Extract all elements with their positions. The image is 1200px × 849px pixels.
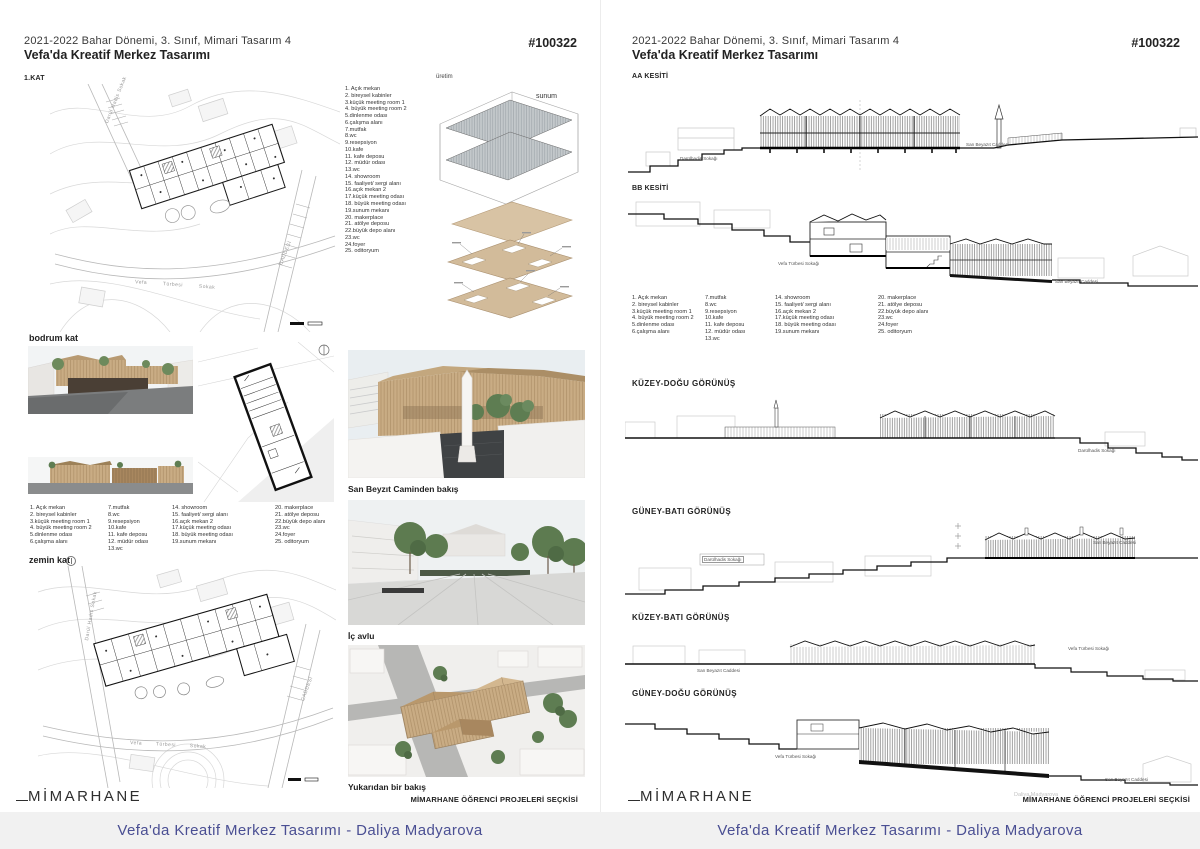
- legend-item: 18. büyük meeting odası: [775, 322, 836, 329]
- legend-item: 3.küçük meeting room 1: [632, 309, 694, 316]
- legend-item: 7.mutfak: [345, 127, 440, 134]
- logo-underscore: [16, 787, 28, 801]
- legend-item: 20. makerplace: [275, 505, 325, 512]
- bottom-banner: Vefa'da Kreatif Merkez Tasarımı - Daliya…: [0, 812, 1200, 849]
- render-ic-avlu: [348, 500, 585, 625]
- legend-item: 14. showroom: [172, 505, 233, 512]
- legend-item: 15. faaliyet/ sergi alanı: [775, 302, 836, 309]
- legend-list-1kat: 1. Açık mekan2. bireysel kabinler3.küçük…: [345, 86, 440, 255]
- axo-label-uretim: üretim: [436, 74, 453, 80]
- legend-item: 16.açık mekan 2: [775, 309, 836, 316]
- legend-basement: 1. Açık mekan2. bireysel kabinler3.küçük…: [30, 505, 330, 557]
- legend-item: 3.küçük meeting room 1: [345, 100, 440, 107]
- elevation-se-label: GÜNEY-DOĞU GÖRÜNÜŞ: [632, 689, 737, 698]
- legend-item: 6.çalışma alanı: [345, 120, 440, 127]
- banner-title-right: Vefa'da Kreatif Merkez Tasarımı - Daliya…: [600, 812, 1200, 849]
- elevation-nw-drawing: [625, 628, 1198, 686]
- legend-item: 5.dinlenme odası: [632, 322, 694, 329]
- legend-item: 13.wc: [108, 546, 148, 553]
- legend-item: 11. kafe deposu: [108, 532, 148, 539]
- nw-street-sanbeyazit: San Beyazıt Caddesi: [697, 668, 740, 673]
- legend-item: 5.dinlenme odası: [30, 532, 92, 539]
- legend-item: 13.wc: [705, 336, 745, 343]
- legend-item: 19.sunum mekanı: [172, 539, 233, 546]
- legend-item: 8.wc: [705, 302, 745, 309]
- basement-render-1: [28, 346, 193, 414]
- legend-item: 5.dinlenme odası: [345, 113, 440, 120]
- caption-san-beyzit: San Beyzıt Caminden bakış: [348, 484, 459, 494]
- legend-item: 11. kafe deposu: [345, 154, 440, 161]
- legend-item: 16.açık mekan 2: [345, 187, 440, 194]
- se-street-vefaturbesi: Vefa Türbesi Sokağı: [775, 754, 816, 759]
- legend-item: 17.küçük meeting odası: [775, 315, 836, 322]
- basement-plan: [198, 342, 334, 502]
- legend-item: 24.foyer: [275, 532, 325, 539]
- bb-street-vefaturbesi: Vefa Türbesi Sokağı: [778, 261, 819, 266]
- elevation-ne-label: KÜZEY-DOĞU GÖRÜNÜŞ: [632, 379, 736, 388]
- legend-item: 8.wc: [108, 512, 148, 519]
- legend-item: 10.kafe: [108, 525, 148, 532]
- section-bb-label: BB KESİTİ: [632, 185, 668, 192]
- legend-item: 9.resepsiyon: [108, 519, 148, 526]
- legend-item: 7.mutfak: [108, 505, 148, 512]
- legend-item: 20. makerplace: [345, 215, 440, 222]
- banner-title-left: Vefa'da Kreatif Merkez Tasarımı - Daliya…: [0, 812, 600, 849]
- legend-item: 12. müdür odası: [345, 160, 440, 167]
- legend-item: 12. müdür odası: [705, 329, 745, 336]
- legend-item: 10.kafe: [705, 315, 745, 322]
- legend-item: 23.wc: [345, 235, 440, 242]
- sw-street-sanbeyazit: San Beyazıt Caddesi: [1093, 540, 1136, 545]
- se-street-sanbeyazit: San Beyazıt Caddesi: [1105, 777, 1148, 782]
- legend-item: 22.büyük depo alanı: [275, 519, 325, 526]
- ground-label: zemin kat: [29, 555, 70, 565]
- legend-item: 2. bireysel kabinler: [345, 93, 440, 100]
- legend-item: 12. müdür odası: [108, 539, 148, 546]
- legend-item: 22.büyük depo alanı: [345, 228, 440, 235]
- legend-item: 1. Açık mekan: [30, 505, 92, 512]
- right-project-code: #100322: [1060, 36, 1180, 50]
- logo-underscore-right: [628, 787, 640, 801]
- panel-divider: [600, 0, 601, 812]
- legend-item: 4. büyük meeting room 2: [632, 315, 694, 322]
- legend-item: 24.foyer: [345, 242, 440, 249]
- site-plan-1kat: [50, 84, 340, 332]
- legend-item: 4. büyük meeting room 2: [345, 106, 440, 113]
- legend-item: 4. büyük meeting room 2: [30, 525, 92, 532]
- legend-item: 15. faaliyet/ sergi alanı: [172, 512, 233, 519]
- aa-street-darulhadis: Darülhadis Sokağı: [680, 156, 718, 161]
- legend-item: 3.küçük meeting room 1: [30, 519, 92, 526]
- right-header-title: Vefa'da Kreatif Merkez Tasarımı: [632, 48, 818, 62]
- elevation-ne-drawing: [625, 392, 1198, 470]
- render-san-beyzit: [348, 350, 585, 478]
- caption-aerial: Yukarıdan bir bakış: [348, 782, 426, 792]
- legend-item: 14. showroom: [775, 295, 836, 302]
- legend-item: 21. atölye deposu: [878, 302, 928, 309]
- left-header-title: Vefa'da Kreatif Merkez Tasarımı: [24, 48, 210, 62]
- aa-street-sanbeyazit: San Beyazıt Caddesi: [966, 142, 1009, 147]
- mimarhane-logo-right: MİMARHANE: [628, 787, 754, 805]
- nw-street-vefaturbesi: Vefa Türbesi Sokağı: [1068, 646, 1109, 651]
- legend-item: 11. kafe deposu: [705, 322, 745, 329]
- left-header-course: 2021-2022 Bahar Dönemi, 3. Sınıf, Mimari…: [24, 35, 291, 47]
- floor1-label: 1.KAT: [24, 75, 45, 82]
- legend-item: 6.çalışma alanı: [30, 539, 92, 546]
- legend-right: 1. Açık mekan2. bireysel kabinler3.küçük…: [632, 295, 962, 347]
- legend-item: 19.sunum mekanı: [345, 208, 440, 215]
- left-project-code: #100322: [450, 36, 577, 50]
- sw-street-darulhadis: Darülhadis Sokağı: [702, 556, 744, 563]
- elevation-nw-label: KÜZEY-BATI GÖRÜNÜŞ: [632, 613, 730, 622]
- right-header-course: 2021-2022 Bahar Dönemi, 3. Sınıf, Mimari…: [632, 35, 899, 47]
- mimarhane-logo: MİMARHANE: [16, 787, 142, 805]
- legend-item: 10.kafe: [345, 147, 440, 154]
- legend-item: 14. showroom: [345, 174, 440, 181]
- legend-item: 18. büyük meeting odası: [172, 532, 233, 539]
- legend-item: 17.küçük meeting odası: [172, 525, 233, 532]
- legend-item: 13.wc: [345, 167, 440, 174]
- legend-item: 17.küçük meeting odası: [345, 194, 440, 201]
- legend-item: 6.çalışma alanı: [632, 329, 694, 336]
- legend-item: 20. makerplace: [878, 295, 928, 302]
- north-arrow-icon: [66, 556, 76, 566]
- legend-item: 23.wc: [878, 315, 928, 322]
- legend-item: 8.wc: [345, 133, 440, 140]
- legend-item: 1. Açık mekan: [345, 86, 440, 93]
- legend-item: 22.büyük depo alanı: [878, 309, 928, 316]
- caption-ic-avlu: İç avlu: [348, 631, 374, 641]
- legend-item: 25. oditoryum: [878, 329, 928, 336]
- legend-item: 16.açık mekan 2: [172, 519, 233, 526]
- bb-street-sanbeyazit: San Beyazıt Caddesi: [1055, 279, 1098, 284]
- elevation-sw-label: GÜNEY-BATI GÖRÜNÜŞ: [632, 507, 731, 516]
- legend-item: 18. büyük meeting odası: [345, 201, 440, 208]
- legend-item: 1. Açık mekan: [632, 295, 694, 302]
- legend-item: 7.mutfak: [705, 295, 745, 302]
- legend-item: 2. bireysel kabinler: [30, 512, 92, 519]
- ground-floor-plan: [38, 566, 336, 788]
- section-aa-label: AA KESİTİ: [632, 73, 668, 80]
- basement-label: bodrum kat: [29, 333, 78, 343]
- section-bb-drawing: [628, 198, 1198, 290]
- legend-item: 15. faaliyet/ sergi alanı: [345, 181, 440, 188]
- selection-text-left: MİMARHANE ÖĞRENCİ PROJELERİ SEÇKİSİ: [380, 795, 578, 804]
- presentation-board: 2021-2022 Bahar Dönemi, 3. Sınıf, Mimari…: [0, 0, 1200, 849]
- legend-item: 9.resepsiyon: [705, 309, 745, 316]
- render-aerial: [348, 645, 585, 777]
- legend-item: 25. oditoryum: [345, 248, 440, 255]
- legend-item: 25. oditoryum: [275, 539, 325, 546]
- legend-item: 21. atölye deposu: [345, 221, 440, 228]
- legend-item: 19.sunum mekanı: [775, 329, 836, 336]
- legend-item: 23.wc: [275, 525, 325, 532]
- legend-item: 24.foyer: [878, 322, 928, 329]
- legend-item: 9.resepsiyon: [345, 140, 440, 147]
- ne-street-darulhadis: Darülhadis Sokağı: [1078, 448, 1116, 453]
- legend-item: 21. atölye deposu: [275, 512, 325, 519]
- legend-item: 2. bireysel kabinler: [632, 302, 694, 309]
- axonometric-diagram: [432, 84, 586, 330]
- section-aa-drawing: [628, 92, 1198, 180]
- selection-text-right: MİMARHANE ÖĞRENCİ PROJELERİ SEÇKİSİ: [1000, 795, 1190, 804]
- basement-render-2: [28, 457, 193, 494]
